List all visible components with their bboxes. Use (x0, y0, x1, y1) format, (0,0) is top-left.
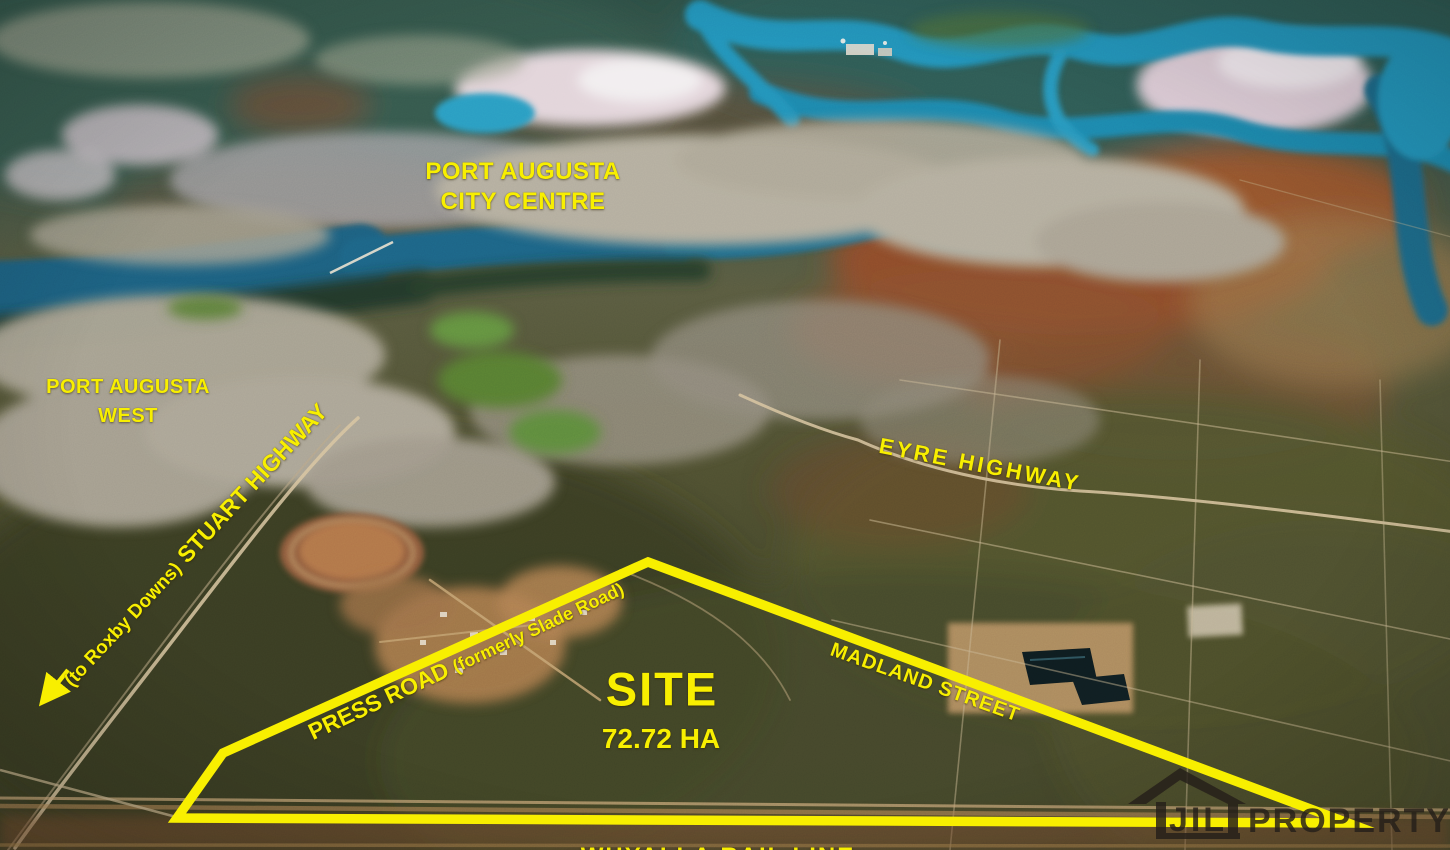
label-line: WEST (46, 402, 210, 431)
label-site: SITE (606, 662, 718, 717)
label-port-augusta-west: PORT AUGUSTA WEST (46, 373, 210, 431)
house-icon: JIL PROPERTY (1126, 756, 1448, 848)
label-line: PORT AUGUSTA (425, 157, 620, 187)
site-annotation-layer (0, 0, 1450, 850)
label-line: PORT AUGUSTA (46, 373, 210, 402)
logo-brand-text: JIL (1169, 801, 1227, 839)
label-port-augusta-city-centre: PORT AUGUSTA CITY CENTRE (425, 157, 620, 217)
label-site-area: 72.72 HA (602, 723, 720, 755)
label-whyalla-rail-line: WHYALLA RAIL LINE (581, 843, 855, 850)
annotated-aerial-map: PORT AUGUSTA CITY CENTRE PORT AUGUSTA WE… (0, 0, 1450, 850)
label-line: CITY CENTRE (425, 187, 620, 217)
logo-word-text: PROPERTY (1248, 802, 1448, 840)
brand-watermark: JIL PROPERTY (1126, 756, 1448, 848)
